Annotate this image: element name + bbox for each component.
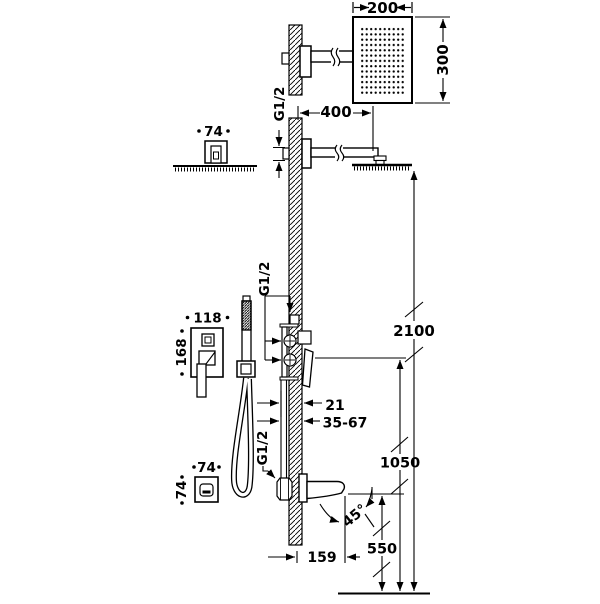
- dimension-35-67: 35-67: [257, 416, 367, 432]
- wand-grip: [242, 301, 251, 330]
- dim-dot: [226, 129, 230, 133]
- spout-side-view: [277, 474, 344, 502]
- dim-dot: [192, 465, 196, 469]
- arm-escutcheon: [302, 139, 311, 168]
- dim-74-height-label: 74: [174, 481, 190, 500]
- dim-35-67-label: 35-67: [323, 416, 368, 432]
- valve-top-outlet: [290, 315, 299, 324]
- angle-45-label: 45°: [340, 501, 371, 530]
- dim-dot: [226, 316, 230, 320]
- dim-dot: [197, 129, 201, 133]
- thread-callout-arm: G1/2: [272, 87, 288, 178]
- shower-installation-diagram: 74 200 300: [0, 0, 600, 600]
- arm-escutcheon: [300, 46, 311, 77]
- thread-g12-top-label: G1/2: [272, 87, 288, 122]
- dim-dot: [180, 372, 184, 376]
- lever-handle: [197, 364, 206, 397]
- arm-pipe-stub: [282, 53, 289, 64]
- valve-trim-sleeve: [298, 331, 311, 344]
- dim-dot: [217, 465, 221, 469]
- spout-front-view: 74 74: [174, 460, 221, 505]
- dim-200-label: 200: [367, 0, 398, 17]
- spout-body: [307, 482, 344, 499]
- technical-drawing-page: 74 200 300: [0, 0, 600, 600]
- hand-shower: [234, 296, 255, 495]
- dim-159-label: 159: [307, 550, 336, 566]
- dim-dot: [186, 316, 190, 320]
- spout-outlet-slot: [203, 491, 211, 494]
- dimension-2100: 2100: [393, 171, 435, 591]
- dim-21-label: 21: [325, 398, 344, 414]
- spout-escutcheon: [299, 474, 307, 502]
- dim-dot: [180, 475, 184, 479]
- thread-g12-mid-label: G1/2: [257, 262, 273, 297]
- dim-400-label: 400: [320, 103, 351, 121]
- diverter-detail: [205, 337, 211, 343]
- dim-118-label: 118: [193, 311, 221, 327]
- dim-2100-label: 2100: [393, 322, 435, 340]
- dim-dot: [180, 329, 184, 333]
- dim-dot: [180, 501, 184, 505]
- dim-168-label: 168: [174, 338, 190, 366]
- nozzle-grid: [361, 26, 405, 95]
- thread-g12-bottom-label: G1/2: [255, 431, 271, 466]
- mixer-front-view: 118 168: [174, 311, 229, 398]
- spout-inwall-body: [277, 478, 292, 500]
- arm-profile-detail: [214, 152, 219, 159]
- dim-550-label: 550: [367, 542, 397, 558]
- arm-pipe-stub: [283, 148, 289, 159]
- dim-74-width-label: 74: [197, 460, 216, 476]
- valve-body: [282, 327, 287, 377]
- dim-74-top-label: 74: [204, 124, 223, 140]
- dimension-159: 159: [268, 496, 360, 566]
- dimension-550: 550: [366, 496, 398, 591]
- wall-section: [289, 25, 302, 545]
- spout-outlet-front: [200, 484, 213, 496]
- dimension-200: 200: [353, 0, 412, 17]
- dim-300-label: 300: [434, 44, 452, 75]
- dimension-300: 300: [415, 17, 452, 103]
- shower-head-side-view: [283, 139, 412, 169]
- wand-tip: [243, 296, 250, 301]
- thread-callout-spout: G1/2: [255, 431, 275, 478]
- arm-top-view: 74: [173, 124, 257, 170]
- valve-lever: [303, 349, 314, 387]
- head-connector-upper: [374, 156, 386, 161]
- holder-detail: [241, 364, 251, 374]
- shower-arm: [311, 148, 378, 157]
